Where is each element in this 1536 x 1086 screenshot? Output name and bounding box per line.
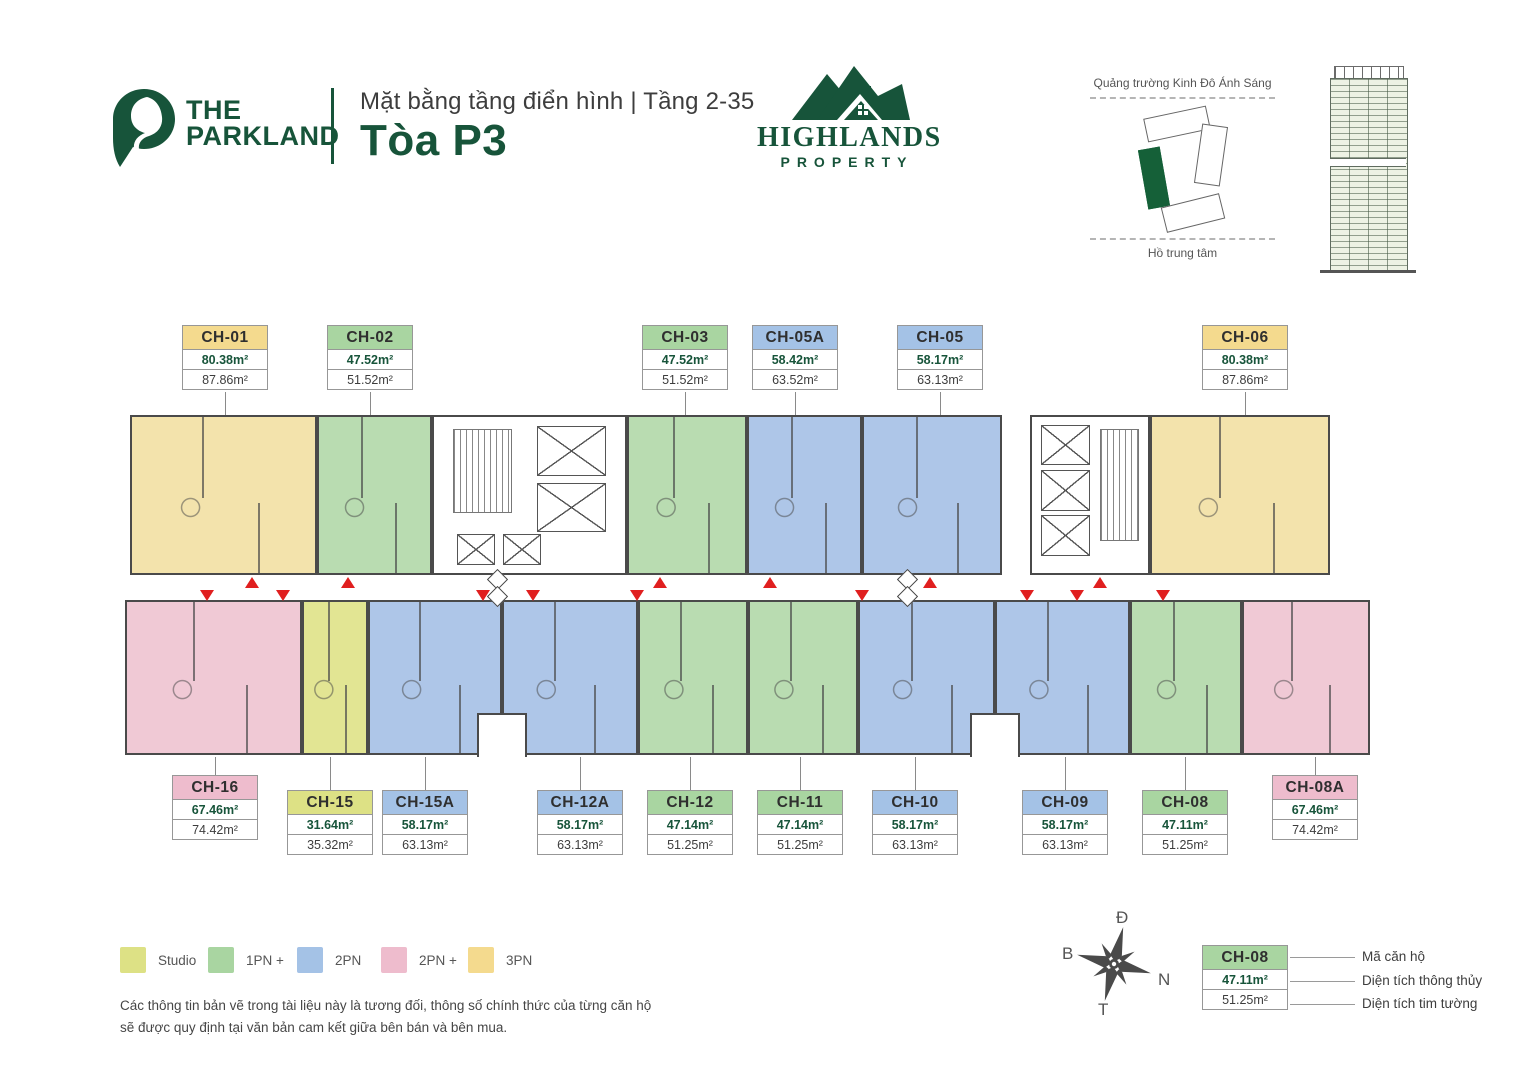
entrance-arrow-down <box>276 590 290 601</box>
compass-top-letter: Đ <box>1116 908 1128 928</box>
unit-gross-area: 74.42m² <box>173 820 257 839</box>
unit-gross-area: 87.86m² <box>1203 370 1287 389</box>
unit-net-area: 80.38m² <box>183 350 267 370</box>
legend-label: 2PN + <box>419 953 457 968</box>
unit-gross-area: 63.13m² <box>383 835 467 854</box>
unit-ch-06 <box>1150 415 1330 575</box>
unit-label-ch-08: CH-0847.11m²51.25m² <box>1142 790 1228 855</box>
unit-ch-05 <box>862 415 1002 575</box>
unit-ch-11 <box>748 600 858 755</box>
label-connector <box>580 757 581 790</box>
label-connector <box>1185 757 1186 790</box>
unit-ch-15 <box>302 600 368 755</box>
floorplan-page: THE PARKLAND Mặt bằng tầng điển hình | T… <box>0 0 1536 1086</box>
disclaimer-line1: Các thông tin bản vẽ trong tài liệu này … <box>120 995 651 1017</box>
key-box-gross: 51.25m² <box>1203 990 1287 1009</box>
legend-swatch-1pn <box>208 947 234 973</box>
unit-net-area: 58.17m² <box>538 815 622 835</box>
unit-net-area: 47.52m² <box>643 350 727 370</box>
unit-label-ch-03: CH-0347.52m²51.52m² <box>642 325 728 390</box>
unit-gross-area: 51.52m² <box>643 370 727 389</box>
unit-code: CH-15 <box>288 791 372 815</box>
highlands-logo-mountains <box>782 62 912 122</box>
unit-gross-area: 51.25m² <box>758 835 842 854</box>
label-connector <box>330 757 331 790</box>
key-label-net: Diện tích thông thủy <box>1362 973 1482 988</box>
legend-label: 1PN + <box>246 953 284 968</box>
label-connector <box>370 392 371 415</box>
developer-name: HIGHLANDS <box>757 122 937 154</box>
unit-net-area: 47.52m² <box>328 350 412 370</box>
disclaimer-line2: sẽ được quy định tại văn bản cam kết giữ… <box>120 1017 507 1039</box>
unit-code: CH-08 <box>1143 791 1227 815</box>
sitemap-top-label: Quảng trường Kinh Đô Ánh Sáng <box>1085 76 1280 90</box>
unit-label-ch-02: CH-0247.52m²51.52m² <box>327 325 413 390</box>
unit-code: CH-05A <box>753 326 837 350</box>
label-connector <box>1245 392 1246 415</box>
unit-code: CH-16 <box>173 776 257 800</box>
entrance-arrow-down <box>1156 590 1170 601</box>
tower-elevation <box>1330 78 1408 272</box>
developer-subname: PROPERTY <box>757 154 937 170</box>
unit-gross-area: 51.25m² <box>1143 835 1227 854</box>
key-box-net: 47.11m² <box>1203 970 1287 990</box>
floorplan-subtitle: Mặt bằng tầng điển hình | Tầng 2-35 <box>360 88 754 116</box>
unit-ch-01 <box>130 415 317 575</box>
unit-net-area: 80.38m² <box>1203 350 1287 370</box>
legend-swatch-3pn <box>468 947 494 973</box>
unit-net-area: 67.46m² <box>173 800 257 820</box>
unit-label-ch-05: CH-0558.17m²63.13m² <box>897 325 983 390</box>
entrance-arrow-up <box>763 577 777 588</box>
unit-code: CH-15A <box>383 791 467 815</box>
label-connector <box>425 757 426 790</box>
compass-left-letter: B <box>1062 944 1073 964</box>
label-connector <box>915 757 916 790</box>
key-line-2 <box>1290 981 1355 982</box>
wing-notch <box>970 713 1020 757</box>
entrance-arrow-down <box>526 590 540 601</box>
sitemap-building-outline-2 <box>1194 123 1228 186</box>
sitemap-building-outline-3 <box>1161 193 1226 233</box>
unit-code: CH-05 <box>898 326 982 350</box>
elevator-icon <box>457 534 495 565</box>
legend-swatch-2pn <box>381 947 407 973</box>
sitemap-bottom-dash <box>1090 238 1275 240</box>
logo-line1: THE <box>186 97 340 123</box>
logo-line2: PARKLAND <box>186 123 340 149</box>
unit-label-ch-16: CH-1667.46m²74.42m² <box>172 775 258 840</box>
unit-ch-03 <box>627 415 747 575</box>
unit-gross-area: 63.13m² <box>898 370 982 389</box>
label-connector <box>795 392 796 415</box>
unit-gross-area: 51.25m² <box>648 835 732 854</box>
unit-label-ch-09: CH-0958.17m²63.13m² <box>1022 790 1108 855</box>
label-connector <box>690 757 691 790</box>
unit-ch-08a <box>1242 600 1370 755</box>
elevator-icon <box>1041 515 1090 556</box>
tower-base <box>1320 270 1416 273</box>
entrance-arrow-up <box>341 577 355 588</box>
unit-net-area: 47.14m² <box>648 815 732 835</box>
unit-label-ch-01: CH-0180.38m²87.86m² <box>182 325 268 390</box>
compass-rose <box>1074 924 1154 1004</box>
unit-net-area: 67.46m² <box>1273 800 1357 820</box>
elevator-icon <box>537 483 606 533</box>
unit-code: CH-08A <box>1273 776 1357 800</box>
entrance-arrow-down <box>200 590 214 601</box>
key-line-1 <box>1290 957 1355 958</box>
unit-net-area: 58.42m² <box>753 350 837 370</box>
stair-shaft <box>1100 429 1139 540</box>
unit-label-ch-10: CH-1058.17m²63.13m² <box>872 790 958 855</box>
unit-label-ch-05a: CH-05A58.42m²63.52m² <box>752 325 838 390</box>
entrance-arrow-down <box>630 590 644 601</box>
unit-gross-area: 63.13m² <box>538 835 622 854</box>
compass-bottom-letter: T <box>1098 1000 1108 1020</box>
entrance-arrow-down <box>1020 590 1034 601</box>
unit-label-ch-12: CH-1247.14m²51.25m² <box>647 790 733 855</box>
unit-gross-area: 63.13m² <box>1023 835 1107 854</box>
page-title: Tòa P3 <box>360 116 507 166</box>
unit-ch-05a <box>747 415 862 575</box>
entrance-arrow-up <box>653 577 667 588</box>
unit-gross-area: 35.32m² <box>288 835 372 854</box>
label-connector <box>215 757 216 775</box>
unit-gross-area: 74.42m² <box>1273 820 1357 839</box>
entrance-arrow-down <box>1070 590 1084 601</box>
elevator-icon <box>537 426 606 476</box>
entrance-arrow-up <box>923 577 937 588</box>
legend-swatch-2pn <box>297 947 323 973</box>
unit-code: CH-09 <box>1023 791 1107 815</box>
unit-label-ch-15a: CH-15A58.17m²63.13m² <box>382 790 468 855</box>
legend-label: Studio <box>158 953 196 968</box>
unit-gross-area: 51.52m² <box>328 370 412 389</box>
elevator-icon <box>1041 470 1090 511</box>
core-1 <box>432 415 627 575</box>
unit-net-area: 31.64m² <box>288 815 372 835</box>
unit-gross-area: 63.13m² <box>873 835 957 854</box>
unit-ch-16 <box>125 600 302 755</box>
label-connector <box>940 392 941 415</box>
unit-code: CH-06 <box>1203 326 1287 350</box>
unit-label-ch-12a: CH-12A58.17m²63.13m² <box>537 790 623 855</box>
key-line-3 <box>1290 1004 1355 1005</box>
label-connector <box>225 392 226 415</box>
tower-refuge-band <box>1330 158 1406 167</box>
legend-label: 3PN <box>506 953 532 968</box>
parkland-logo-mark <box>112 88 176 168</box>
legend-label: 2PN <box>335 953 361 968</box>
unit-label-ch-11: CH-1147.14m²51.25m² <box>757 790 843 855</box>
unit-code: CH-10 <box>873 791 957 815</box>
sitemap-top-dash <box>1090 97 1275 99</box>
label-connector <box>800 757 801 790</box>
unit-net-area: 58.17m² <box>1023 815 1107 835</box>
sitemap-bottom-label: Hồ trung tâm <box>1085 246 1280 260</box>
entrance-arrow-up <box>245 577 259 588</box>
key-label-code: Mã căn hộ <box>1362 949 1425 964</box>
key-label-gross: Diện tích tim tường <box>1362 996 1477 1011</box>
unit-code: CH-01 <box>183 326 267 350</box>
label-connector <box>1315 757 1316 775</box>
label-connector <box>685 392 686 415</box>
unit-net-area: 47.14m² <box>758 815 842 835</box>
entrance-arrow-down <box>855 590 869 601</box>
elevator-icon <box>1041 425 1090 466</box>
stair-shaft <box>453 429 512 512</box>
elevator-icon <box>503 534 541 565</box>
unit-code: CH-12A <box>538 791 622 815</box>
header-divider <box>331 88 334 164</box>
unit-ch-12 <box>638 600 748 755</box>
unit-ch-08 <box>1130 600 1242 755</box>
compass-right-letter: N <box>1158 970 1170 990</box>
unit-net-area: 58.17m² <box>898 350 982 370</box>
entrance-arrow-up <box>1093 577 1107 588</box>
unit-ch-02 <box>317 415 432 575</box>
wing-notch <box>477 713 527 757</box>
unit-code: CH-03 <box>643 326 727 350</box>
unit-label-ch-06: CH-0680.38m²87.86m² <box>1202 325 1288 390</box>
unit-gross-area: 87.86m² <box>183 370 267 389</box>
unit-code: CH-11 <box>758 791 842 815</box>
unit-gross-area: 63.52m² <box>753 370 837 389</box>
key-box-code: CH-08 <box>1203 946 1287 970</box>
sitemap-building-p3-highlight <box>1138 147 1170 210</box>
unit-net-area: 47.11m² <box>1143 815 1227 835</box>
unit-label-ch-15: CH-1531.64m²35.32m² <box>287 790 373 855</box>
unit-label-ch-08a: CH-08A67.46m²74.42m² <box>1272 775 1358 840</box>
key-box: CH-08 47.11m² 51.25m² <box>1202 945 1288 1010</box>
core-2 <box>1030 415 1150 575</box>
unit-code: CH-02 <box>328 326 412 350</box>
unit-net-area: 58.17m² <box>383 815 467 835</box>
unit-net-area: 58.17m² <box>873 815 957 835</box>
unit-code: CH-12 <box>648 791 732 815</box>
legend-swatch-studio <box>120 947 146 973</box>
label-connector <box>1065 757 1066 790</box>
parkland-logo-text: THE PARKLAND <box>186 97 340 150</box>
